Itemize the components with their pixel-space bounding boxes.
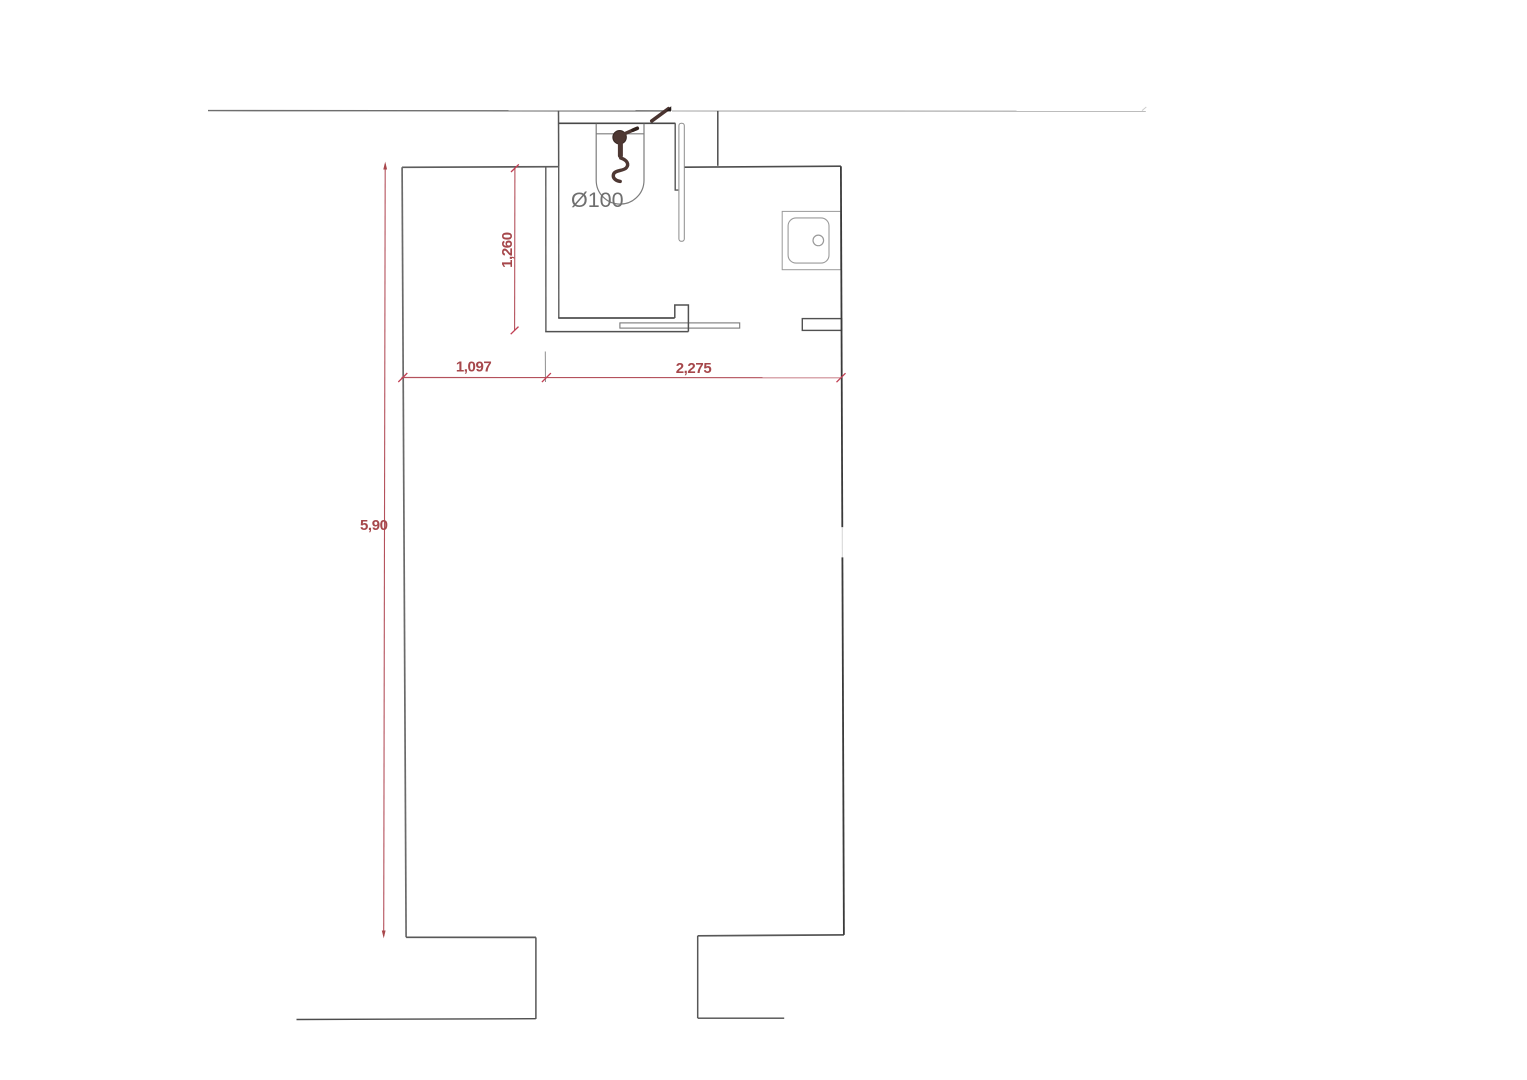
svg-text:1,097: 1,097 (456, 358, 492, 375)
svg-text:Ø100: Ø100 (571, 188, 624, 212)
svg-text:5,90: 5,90 (360, 517, 388, 534)
svg-text:2,275: 2,275 (676, 360, 712, 377)
svg-text:1,260: 1,260 (499, 232, 516, 268)
